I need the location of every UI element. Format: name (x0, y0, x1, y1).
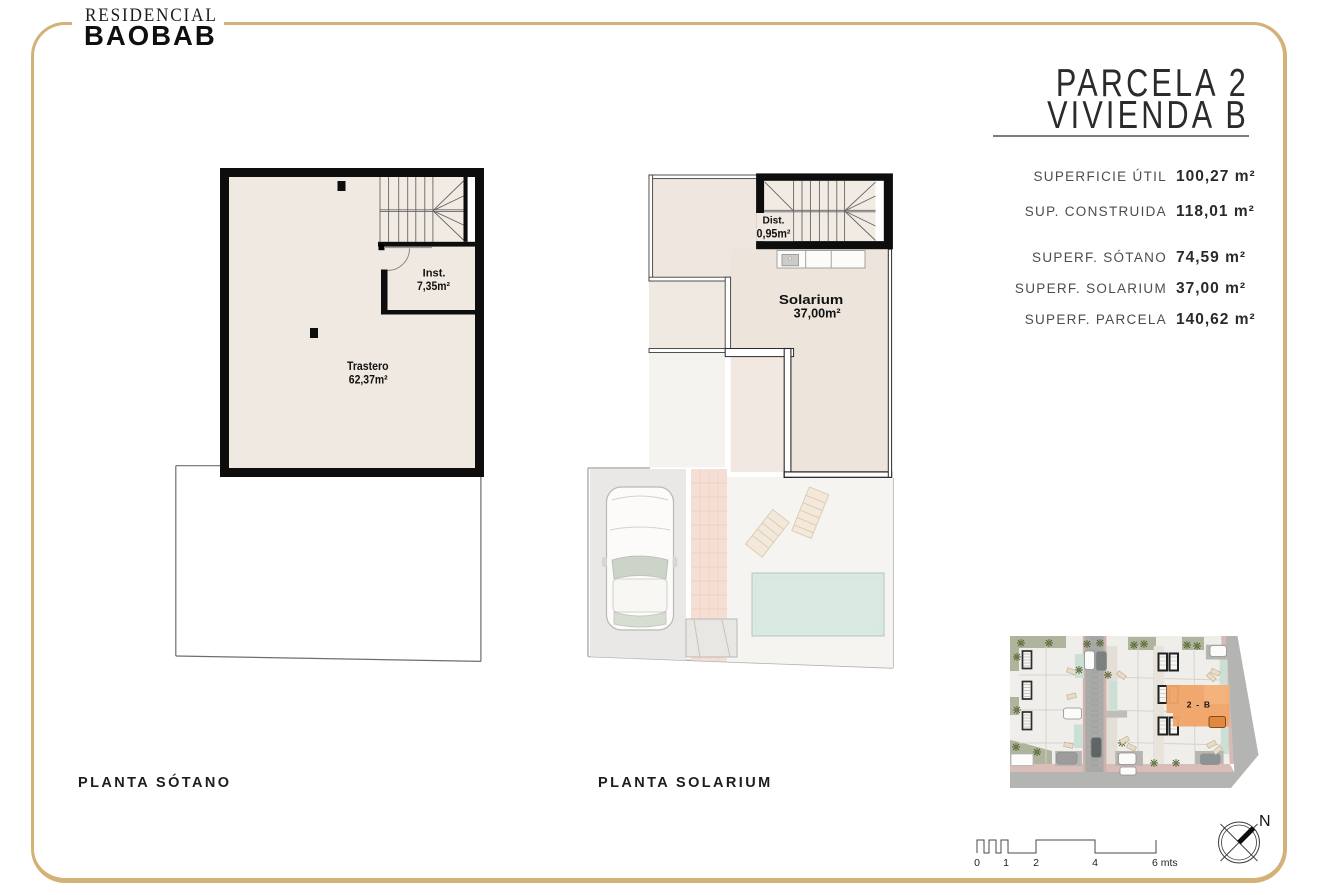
svg-text:4: 4 (1092, 857, 1098, 869)
svg-text:6 mts: 6 mts (1152, 857, 1178, 869)
svg-text:1: 1 (1003, 857, 1009, 869)
svg-text:2: 2 (1033, 857, 1039, 869)
svg-text:0: 0 (974, 857, 980, 869)
svg-text:N: N (1259, 813, 1271, 830)
svg-text:Dist.: Dist. (763, 215, 785, 227)
svg-text:0,95m²: 0,95m² (757, 228, 791, 240)
svg-text:37,00m²: 37,00m² (794, 305, 842, 320)
svg-text:2 - B: 2 - B (1187, 700, 1211, 710)
